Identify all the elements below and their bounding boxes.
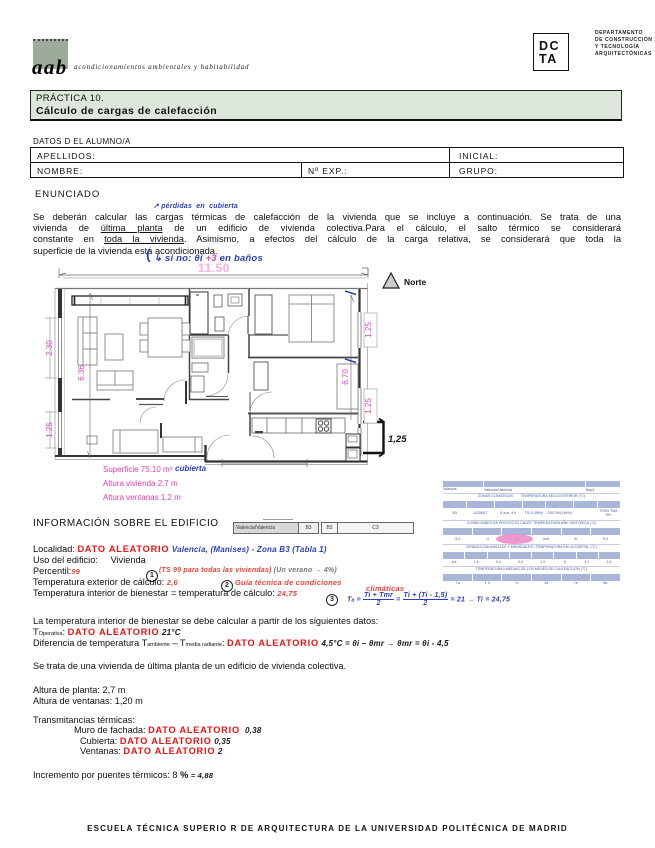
svg-text:1.25: 1.25	[364, 322, 373, 338]
svg-text:Altura vivienda 2.7 m: Altura vivienda 2.7 m	[103, 479, 178, 488]
svg-text:1.25: 1.25	[45, 422, 54, 438]
svg-text:Norte: Norte	[404, 277, 426, 287]
svg-text:6.70: 6.70	[341, 369, 350, 385]
svg-text:cubierta: cubierta	[175, 464, 207, 473]
svg-text:1.25: 1.25	[364, 398, 373, 414]
svg-text:1,25: 1,25	[388, 434, 407, 445]
svg-text:6.36: 6.36	[77, 365, 86, 381]
svg-text:2.30: 2.30	[45, 340, 54, 356]
svg-text:Superficie 75.10 m²: Superficie 75.10 m²	[103, 465, 173, 474]
svg-text:Altura ventanas 1.2 m: Altura ventanas 1.2 m	[103, 493, 181, 502]
